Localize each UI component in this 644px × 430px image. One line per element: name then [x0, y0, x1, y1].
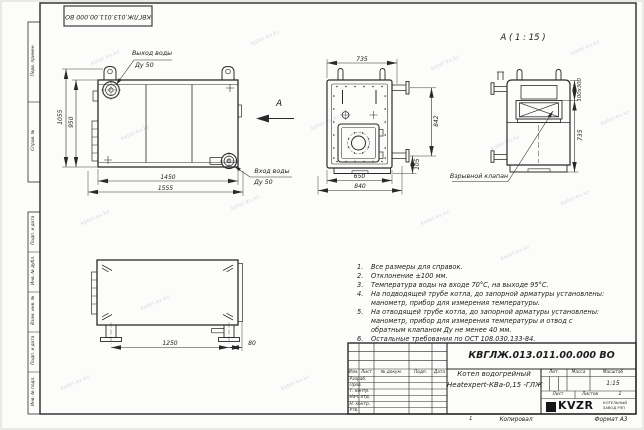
dim-side-width-inner: 1450	[148, 175, 188, 181]
drawing-sheet: kotel-kv.kz kotel-kv.kz kotel-kv.kz kote…	[0, 0, 644, 430]
titleblock-col-podp: Подп.	[409, 371, 432, 376]
sheet-mark: 1	[469, 417, 473, 423]
note-item: 5.На отводящей трубе котла, до запорной …	[357, 308, 609, 335]
note-text: Остальные требования по ОСТ 108.030.133-…	[371, 335, 609, 344]
titleblock-col-list: Лист	[359, 371, 374, 376]
note-item: 2.Отклонение ±100 мм.	[357, 272, 609, 281]
callout-water-inlet-dn: Ду 50	[254, 180, 273, 187]
dim-front-offset: 105	[415, 150, 421, 178]
view-arrow-label: А	[276, 100, 282, 109]
note-text: На отводящей трубе котла, до запорной ар…	[371, 308, 609, 335]
view-a-geometry	[452, 70, 579, 182]
titleblock-masshtab-label: Масштаб	[590, 371, 636, 376]
filing-stamp-number: КВГЛЖ.013.011.00.000 ВО	[64, 6, 152, 26]
note-number: 5.	[357, 308, 371, 335]
titleblock-listov-label: Листов	[575, 393, 605, 398]
note-text: Температура воды на входе 70°С, на выход…	[371, 281, 609, 290]
dim-side-width-outer: 1555	[146, 186, 186, 192]
titleblock-scale-value: 1:15	[590, 381, 636, 387]
titleblock-row-prov: Пров.	[350, 384, 363, 389]
callout-water-outlet-dn: Ду 50	[135, 63, 154, 70]
titleblock-col-data: Дата	[432, 371, 447, 376]
copied-label: Копировал	[491, 417, 541, 423]
titleblock-col-izm: Изм.	[348, 371, 359, 376]
dim-plan-feet-span: 1250	[150, 341, 190, 347]
note-number: 3.	[357, 281, 371, 290]
dim-side-height-inner: 950	[68, 102, 74, 142]
notes-block: 1.Все размеры для справок. 2.Отклонение …	[357, 263, 609, 344]
titleblock-lit-label: Лит.	[541, 371, 567, 376]
frame	[1, 1, 643, 429]
callout-water-inlet: Вход воды	[250, 169, 294, 176]
note-text: На подводящей трубе котла, до запорной а…	[371, 290, 609, 308]
note-item: 6.Остальные требования по ОСТ 108.030.13…	[357, 335, 609, 344]
titleblock-col-ndokum: № докум.	[374, 371, 409, 376]
margin-label-inv-podl: Инв. № подл.	[32, 363, 37, 419]
dim-side-height-outer: 1055	[58, 97, 64, 137]
titleblock-row-tkontr: Т. контр.	[350, 390, 370, 395]
note-item: 1.Все размеры для справок.	[357, 263, 609, 272]
titleblock-massa-label: Масса	[567, 371, 590, 376]
titleblock-listov-value: 1	[612, 392, 628, 397]
titleblock-doc-number: КВГЛЖ.013.011.00.000 ВО	[447, 351, 636, 361]
callout-explosion-valve: Взрывной клапан	[449, 174, 509, 181]
dim-front-bottom-inner: 650	[340, 174, 380, 180]
titleblock-name-line2: Heatexpert-КВа-0,15 -ГЛЖ	[447, 382, 541, 389]
titleblock-list-label: Лист	[541, 393, 575, 398]
titleblock-name-line1: Котел водогрейный	[447, 371, 541, 378]
titleblock-row-nachotd: Нач. отд.	[350, 396, 371, 401]
drawing-linework	[0, 0, 644, 430]
titleblock-row-nkontr: Н. контр.	[350, 403, 371, 408]
margin-label-sprav-no: Справ. №	[32, 112, 37, 168]
dim-front-bottom-outer: 840	[340, 184, 380, 190]
note-text: Отклонение ±100 мм.	[371, 272, 609, 281]
dim-view-a-slot: 100х300	[578, 71, 584, 107]
note-item: 3.Температура воды на входе 70°С, на вых…	[357, 281, 609, 290]
note-number: 2.	[357, 272, 371, 281]
dim-front-top: 735	[342, 57, 382, 63]
note-text: Все размеры для справок.	[371, 263, 609, 272]
note-item: 4.На подводящей трубе котла, до запорной…	[357, 290, 609, 308]
titleblock-row-razrab: Разраб.	[350, 378, 367, 383]
kvzr-logo-icon	[546, 402, 556, 412]
margin-label-perv-primen: Перв. примен.	[32, 32, 37, 88]
kvzr-logo-text: KVZR	[558, 400, 593, 411]
note-number: 6.	[357, 335, 371, 344]
dim-plan-offset: 80	[243, 341, 261, 347]
titleblock-row-utv: Утв.	[350, 409, 359, 414]
kvzr-logo-subtext-2: ЗАВОД РЭП	[603, 407, 625, 411]
dim-view-a-height: 735	[578, 117, 584, 153]
callout-water-outlet: Выход воды	[131, 51, 173, 58]
kvzr-logo-subtext-1: КОТЕЛЬНЫЙ	[603, 402, 627, 406]
view-a-title: А ( 1 : 15 )	[487, 34, 559, 43]
plan-view-geometry	[92, 260, 243, 351]
note-number: 4.	[357, 290, 371, 308]
note-number: 1.	[357, 263, 371, 272]
dim-front-right: 842	[434, 101, 440, 141]
format-label: Формат А3	[586, 417, 636, 423]
